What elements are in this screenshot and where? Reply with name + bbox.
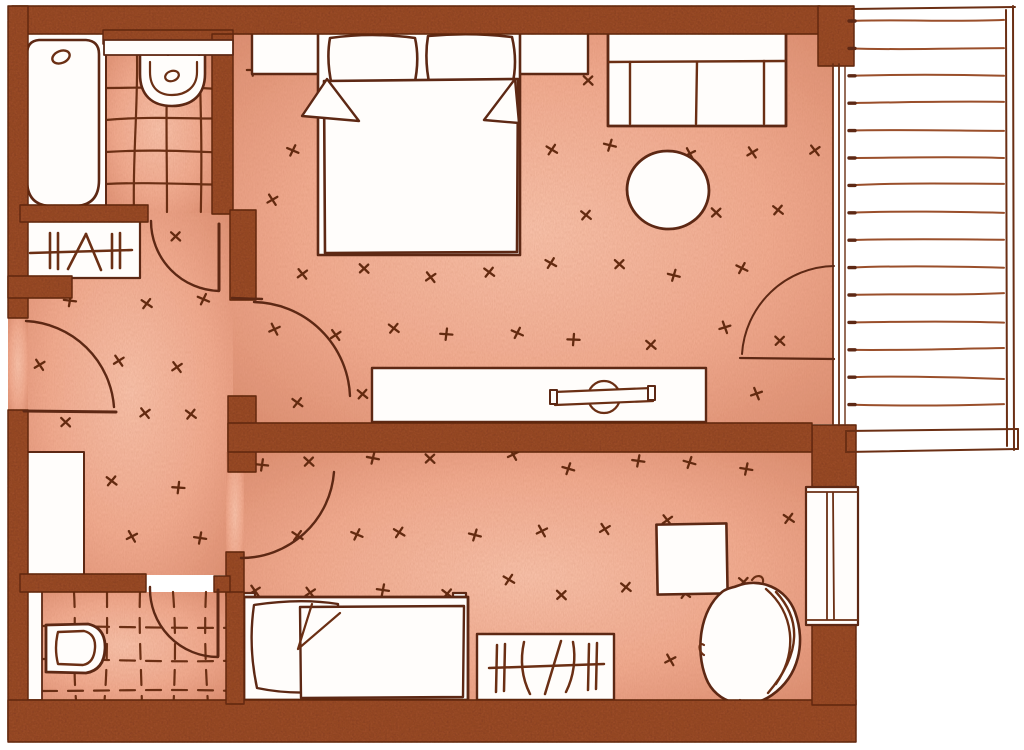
wall-wc-top-stub: [214, 576, 230, 592]
wall-left-upper: [8, 6, 28, 318]
bathroom-top-left: [20, 28, 106, 215]
deck-plank: [849, 48, 1004, 49]
bathroom-shelf: [104, 40, 233, 55]
entrance-doorway-floor: [8, 316, 28, 412]
door-leaf: [24, 411, 116, 412]
deck-plank: [849, 266, 1004, 267]
bathroom-tile-line: [106, 183, 212, 184]
deck-plank: [849, 157, 1004, 158]
balcony-glass-wall: [833, 64, 839, 424]
hall-closet: [22, 452, 84, 578]
wall-right-lower: [812, 625, 856, 705]
deck-plank: [849, 102, 1004, 104]
wall-wc-right: [226, 592, 244, 704]
wall-wc-top: [20, 574, 146, 592]
deck-plank: [849, 212, 1004, 213]
deck-plank: [849, 20, 1004, 21]
deck-plank: [849, 404, 1004, 405]
deck-plank: [849, 130, 1004, 131]
wardrobe-niche-group: [20, 220, 140, 278]
square-side-table: [656, 523, 727, 594]
wall-bathroom-bedroom: [212, 34, 233, 214]
deck-plank: [849, 348, 1004, 350]
door-leaf: [232, 298, 262, 299]
wall-pillar-top-right: [818, 6, 854, 66]
floor-plan-drawing: [0, 0, 1024, 750]
tv-screen-icon: [554, 388, 653, 405]
deck-plank: [849, 239, 1004, 240]
duvet: [324, 79, 518, 253]
door-leaf: [740, 358, 834, 359]
deck-plank: [849, 75, 1004, 76]
right-wall-window: [806, 487, 858, 625]
deck-planks: [849, 20, 1004, 406]
sofa: [608, 33, 786, 126]
deck-plank: [849, 293, 1004, 295]
wardrobe-second-room: [477, 634, 614, 700]
bathtub: [27, 40, 99, 206]
tv-sideboard: [372, 368, 706, 422]
balcony: [845, 6, 1018, 452]
deck-plank: [849, 322, 1004, 323]
deck-plank: [849, 377, 1004, 379]
washbasin: [140, 56, 205, 106]
wc-tile-line: [42, 690, 226, 691]
balcony-frame: [845, 6, 1018, 452]
wall-bottom: [8, 700, 856, 742]
wall-vestibule-stub: [8, 276, 72, 298]
wall-interior-divider: [228, 423, 812, 452]
wall-tub-bottom: [20, 205, 148, 222]
single-bed-duvet: [300, 606, 464, 698]
wall-hall-bedroom-upper: [230, 210, 256, 300]
wall-right-upper: [812, 425, 856, 487]
floor-plan-page: [0, 0, 1024, 750]
deck-plank: [849, 184, 1004, 186]
